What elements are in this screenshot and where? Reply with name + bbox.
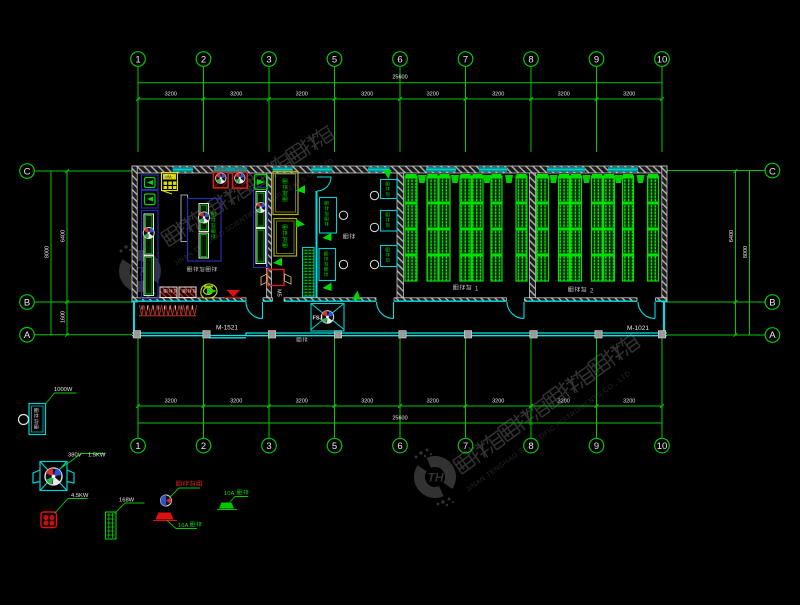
svg-text:3200: 3200 (296, 91, 308, 97)
svg-text:3200: 3200 (427, 91, 439, 97)
svg-text:B: B (24, 297, 30, 308)
svg-text:A: A (24, 330, 31, 341)
svg-text:5: 5 (332, 441, 337, 452)
svg-text:16A: 16A (178, 523, 188, 529)
svg-text:2: 2 (201, 441, 206, 452)
svg-text:3200: 3200 (558, 91, 570, 97)
svg-text:9: 9 (594, 54, 599, 65)
svg-text:10: 10 (657, 54, 668, 65)
svg-text:3200: 3200 (165, 398, 177, 404)
svg-text:6: 6 (397, 54, 402, 65)
svg-text:FSJ: FSJ (313, 316, 323, 322)
svg-text:3200: 3200 (623, 91, 635, 97)
svg-text:25600: 25600 (392, 75, 407, 81)
svg-text:5: 5 (332, 54, 337, 65)
svg-text:3200: 3200 (361, 398, 373, 404)
svg-text:3200: 3200 (361, 91, 373, 97)
svg-text:3200: 3200 (492, 91, 504, 97)
svg-text:3: 3 (266, 54, 271, 65)
svg-text:7: 7 (463, 54, 468, 65)
svg-text:3: 3 (266, 441, 271, 452)
svg-text:1: 1 (135, 441, 140, 452)
svg-text:A: A (769, 330, 776, 341)
svg-text:2: 2 (201, 54, 206, 65)
svg-text:6400: 6400 (61, 230, 67, 242)
svg-text:3200: 3200 (230, 398, 242, 404)
svg-text:380V: 380V (68, 453, 82, 459)
svg-text:6400: 6400 (729, 230, 735, 242)
svg-text:8: 8 (528, 441, 533, 452)
svg-text:3200: 3200 (558, 398, 570, 404)
svg-text:M-1521: M-1521 (216, 325, 238, 332)
svg-text:8000: 8000 (743, 246, 749, 258)
svg-text:3200: 3200 (296, 398, 308, 404)
svg-text:1: 1 (135, 54, 140, 65)
svg-text:8: 8 (528, 54, 533, 65)
svg-text:3200: 3200 (492, 398, 504, 404)
svg-text:6: 6 (397, 441, 402, 452)
svg-text:B: B (769, 297, 775, 308)
svg-text:M-1021: M-1021 (627, 325, 649, 332)
svg-text:3200: 3200 (165, 91, 177, 97)
svg-text:3200: 3200 (230, 91, 242, 97)
svg-text:10: 10 (657, 441, 668, 452)
svg-text:8000: 8000 (45, 246, 51, 258)
svg-text:168W: 168W (119, 498, 135, 504)
svg-text:TH: TH (428, 471, 444, 485)
svg-text:10A: 10A (224, 491, 234, 497)
svg-text:M5: M5 (276, 289, 282, 297)
svg-text:7: 7 (463, 441, 468, 452)
svg-text:1600: 1600 (61, 311, 67, 323)
svg-text:3200: 3200 (623, 398, 635, 404)
svg-text:C: C (24, 166, 31, 177)
svg-text:1000W: 1000W (54, 387, 73, 393)
svg-text:C: C (769, 166, 776, 177)
svg-text:25600: 25600 (392, 416, 407, 422)
svg-text:4.5KW: 4.5KW (71, 493, 89, 499)
svg-text:1.5KW: 1.5KW (88, 453, 106, 459)
svg-text:3200: 3200 (427, 398, 439, 404)
svg-text:9: 9 (594, 441, 599, 452)
